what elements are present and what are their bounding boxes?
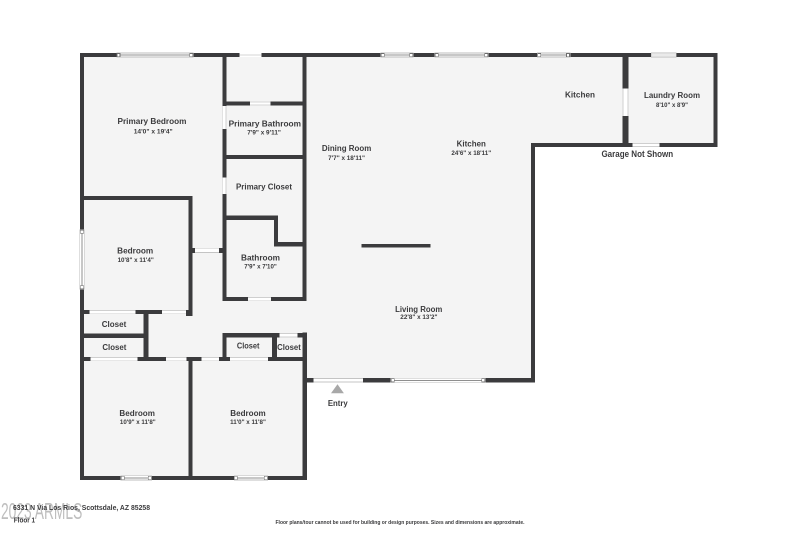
svg-text:7'7" x 18'11": 7'7" x 18'11": [328, 155, 365, 162]
svg-text:Bedroom: Bedroom: [117, 246, 153, 255]
svg-text:Laundry Room: Laundry Room: [644, 91, 700, 100]
svg-text:24'6" x 18'11": 24'6" x 18'11": [451, 150, 491, 157]
svg-text:Primary Bathroom: Primary Bathroom: [229, 119, 301, 128]
svg-text:Closet: Closet: [277, 343, 301, 352]
svg-text:Bedroom: Bedroom: [119, 409, 155, 418]
svg-text:Closet: Closet: [237, 342, 260, 351]
svg-text:Bedroom: Bedroom: [230, 409, 266, 418]
svg-text:Living Room: Living Room: [395, 305, 442, 314]
svg-text:Kitchen: Kitchen: [457, 139, 486, 148]
svg-text:22'8" x 13'2": 22'8" x 13'2": [400, 314, 437, 321]
svg-text:Floor plans/tour cannot be use: Floor plans/tour cannot be used for buil…: [276, 520, 526, 526]
svg-text:Closet: Closet: [102, 320, 127, 329]
svg-text:14'0" x 19'4": 14'0" x 19'4": [134, 129, 173, 136]
svg-text:10'9" x 11'8": 10'9" x 11'8": [120, 419, 156, 426]
svg-text:Entry: Entry: [328, 399, 348, 408]
svg-text:8'10" x 8'9": 8'10" x 8'9": [656, 102, 688, 109]
svg-text:Kitchen: Kitchen: [565, 91, 595, 100]
svg-text:Floor 1: Floor 1: [14, 518, 35, 525]
svg-text:Closet: Closet: [102, 343, 126, 352]
svg-text:7'9" x 7'10": 7'9" x 7'10": [244, 263, 277, 270]
svg-text:Primary Closet: Primary Closet: [236, 183, 292, 192]
svg-text:Bathroom: Bathroom: [241, 254, 280, 263]
svg-text:10'8" x 11'4": 10'8" x 11'4": [118, 257, 154, 264]
svg-text:11'0" x 11'8": 11'0" x 11'8": [230, 419, 266, 426]
svg-text:Primary Bedroom: Primary Bedroom: [118, 117, 187, 126]
svg-text:Garage Not Shown: Garage Not Shown: [601, 149, 673, 159]
svg-text:Dining Room: Dining Room: [322, 144, 371, 153]
svg-text:7'9" x 9'11": 7'9" x 9'11": [247, 130, 281, 137]
svg-text:6331 N Via Los Rios, Scottsdal: 6331 N Via Los Rios, Scottsdale, AZ 8525…: [13, 505, 150, 512]
